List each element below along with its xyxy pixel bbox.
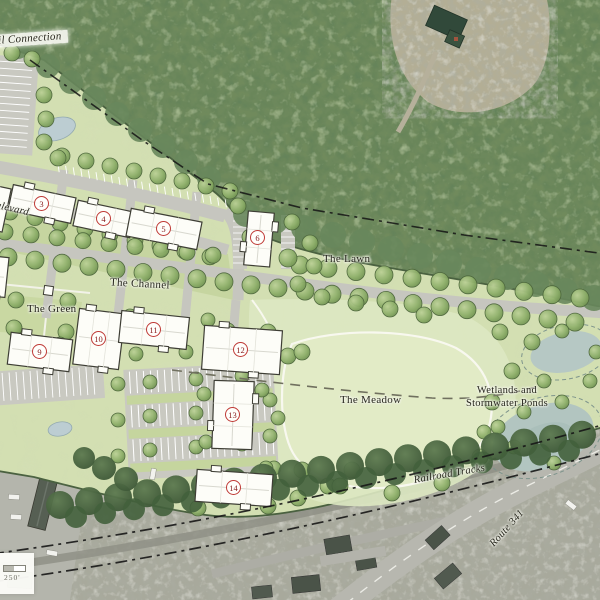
building-marker-3: 3: [34, 196, 49, 211]
label-the-green: The Green: [27, 303, 76, 315]
gazebo: [43, 285, 53, 295]
scale-bar: 250': [0, 553, 34, 594]
label-the-meadow: The Meadow: [340, 394, 401, 406]
site-plan-map: Trail Connection Boulevard The Channel T…: [0, 0, 600, 600]
map-graphics: [0, 0, 600, 600]
building-marker-12: 12: [233, 342, 248, 357]
scale-bar-label: 250': [4, 573, 21, 582]
building-marker-4: 4: [96, 211, 111, 226]
building-marker-5: 5: [156, 221, 171, 236]
building-marker-10: 10: [91, 331, 106, 346]
label-wetlands-line2: Stormwater Ponds: [453, 397, 561, 410]
building-marker-9: 9: [32, 344, 47, 359]
label-wetlands: Wetlands and Stormwater Ponds: [453, 384, 561, 410]
label-the-lawn: The Lawn: [323, 253, 370, 265]
label-wetlands-line1: Wetlands and: [453, 384, 561, 397]
building-marker-13: 13: [225, 407, 240, 422]
building-marker-14: 14: [226, 480, 241, 495]
building-marker-6: 6: [250, 230, 265, 245]
scale-bar-graphic: [3, 565, 26, 572]
building-marker-11: 11: [146, 322, 161, 337]
